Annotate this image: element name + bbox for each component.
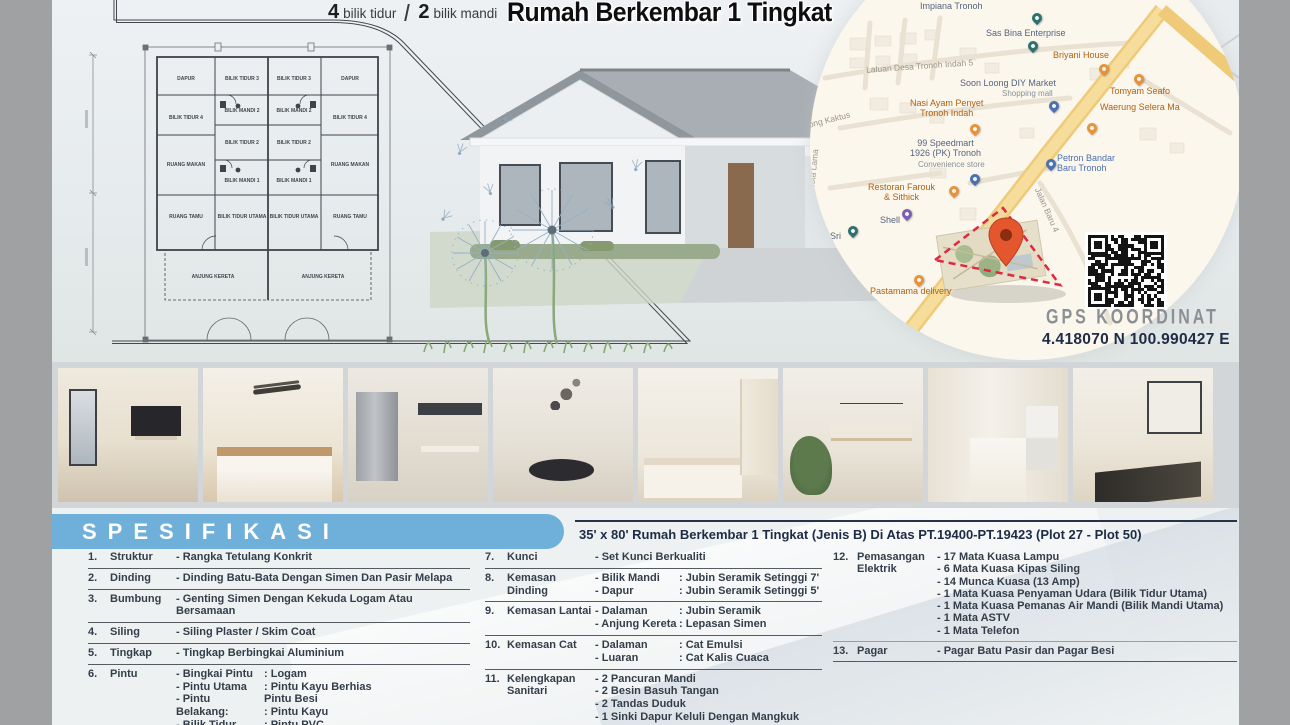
spec-subtitle: 35' x 80' Rumah Berkembar 1 Tingkat (Jen… xyxy=(579,527,1142,542)
gallery-photo-kitchen-fridge xyxy=(348,368,488,502)
bedroom-count: 4 xyxy=(328,1,339,23)
spec-label: Dinding xyxy=(110,572,176,585)
spec-item-kelengkapan-sanitari: 11. Kelengkapan Sanitari - 2 Pancuran Ma… xyxy=(485,670,822,725)
spec-text: - Pagar Batu Pasir dan Pagar Besi xyxy=(937,645,1237,657)
spec-item-tingkap: 5. Tingkap - Tingkap Berbingkai Aluminiu… xyxy=(88,644,470,665)
header-stats: 4bilik tidur2bilik mandi xyxy=(328,1,497,24)
spec-text: - Dinding Batu-Bata Dengan Simen Dan Pas… xyxy=(176,572,470,585)
spec-num: 7. xyxy=(485,551,507,564)
spec-item-kemasan-cat: 10. Kemasan Cat - Dalaman - Luaran : Cat… xyxy=(485,636,822,670)
bathroom-label: bilik mandi xyxy=(434,6,498,21)
room-label-utama: BILIK TIDUR UTAMA xyxy=(218,214,267,220)
room-label-anjung: ANJUNG KERETA xyxy=(192,274,235,280)
room-label-tidur2: BILIK TIDUR 2 xyxy=(225,140,259,146)
room-label-tidur4-2: BILIK TIDUR 4 xyxy=(333,115,367,121)
spec-column-2: 7. Kunci - Set Kunci Berkualiti 8. Kemas… xyxy=(485,548,822,725)
room-label-tamu-2: RUANG TAMU xyxy=(333,214,367,220)
qr-finder-icon xyxy=(1144,235,1164,255)
spec-item-kunci: 7. Kunci - Set Kunci Berkualiti xyxy=(485,548,822,569)
spec-banner: SPESIFIKASI xyxy=(52,514,564,549)
spec-text: - Siling Plaster / Skim Coat xyxy=(176,626,470,639)
spec-label: Tingkap xyxy=(110,647,176,660)
bedroom-label: bilik tidur xyxy=(343,6,396,21)
spec-text: - Rangka Tetulang Konkrit xyxy=(176,551,470,564)
map-label-speedmart-sub: Convenience store xyxy=(918,160,985,170)
room-label-tidur3: BILIK TIDUR 3 xyxy=(225,76,259,82)
spec-column-3: 12. Pemasangan Elektrik - 17 Mata Kuasa … xyxy=(833,548,1237,662)
spec-keys: - Dalaman - Luaran xyxy=(595,639,679,665)
room-label-makan-2: RUANG MAKAN xyxy=(331,162,370,168)
map-label-soon-loong: Soon Loong DIY Market xyxy=(960,78,1056,88)
spec-text: - 17 Mata Kuasa Lampu - 6 Mata Kuasa Kip… xyxy=(937,551,1237,637)
map-label-shell: Shell xyxy=(880,215,900,225)
spec-keys: - Bingkai Pintu - Pintu Utama - Pintu Be… xyxy=(176,668,264,725)
room-label-tidur4: BILIK TIDUR 4 xyxy=(169,115,203,121)
gallery-photo-dining-area xyxy=(493,368,633,502)
spec-num: 10. xyxy=(485,639,507,665)
gallery-photo-foyer-cabinet xyxy=(783,368,923,502)
spec-num: 5. xyxy=(88,647,110,660)
dimension-line xyxy=(85,52,97,335)
room-label-anjung-2: ANJUNG KERETA xyxy=(302,274,345,280)
map-label-speedmart: 99 Speedmart 1926 (PK) Tronoh xyxy=(910,138,981,158)
room-label-dapur-2: DAPUR xyxy=(341,76,359,82)
spec-label: Kelengkapan Sanitari xyxy=(507,673,595,725)
spec-item-struktur: 1. Struktur - Rangka Tetulang Konkrit xyxy=(88,548,470,569)
spec-vals: : Logam : Pintu Kayu Berhias Pintu Besi … xyxy=(264,668,470,725)
spec-num: 11. xyxy=(485,673,507,725)
spec-label: Kemasan Lantai xyxy=(507,605,595,631)
spec-vals: : Jubin Seramik Setinggi 7' : Jubin Sera… xyxy=(679,572,822,598)
spec-label: Kemasan Cat xyxy=(507,639,595,665)
gps-coordinates: 4.418070 N 100.990427 E xyxy=(1042,331,1230,349)
room-label-tamu: RUANG TAMU xyxy=(169,214,203,220)
room-label-mandi1: BILIK MANDI 1 xyxy=(225,178,260,184)
qr-finder-icon xyxy=(1088,287,1108,307)
spec-column-1: 1. Struktur - Rangka Tetulang Konkrit 2.… xyxy=(88,548,470,725)
room-label-mandi1-2: BILIK MANDI 1 xyxy=(277,178,312,184)
spec-item-bumbung: 3. Bumbung - Genting Simen Dengan Kekuda… xyxy=(88,590,470,624)
photo-gallery xyxy=(52,362,1239,508)
map-label-soon-loong-sub: Shopping mall xyxy=(1002,89,1053,99)
map-label-tomyam: Tomyam Seafo xyxy=(1110,86,1170,96)
map-label-warung: Waerung Selera Ma xyxy=(1100,102,1180,112)
spec-item-dinding: 2. Dinding - Dinding Batu-Bata Dengan Si… xyxy=(88,569,470,590)
map-label-impiana: Impiana Tronoh xyxy=(920,1,983,11)
gps-title: GPS KOORDINAT xyxy=(1046,306,1219,330)
spec-num: 8. xyxy=(485,572,507,598)
brochure-screenshot: DAPUR BILIK TIDUR 3 BILIK MANDI 2 BILIK … xyxy=(0,0,1290,725)
spec-keys: - Dalaman - Anjung Kereta xyxy=(595,605,679,631)
page-title: Rumah Berkembar 1 Tingkat xyxy=(507,0,832,28)
map-label-sas-bina: Sas Bina Enterprise xyxy=(986,28,1066,38)
qr-code xyxy=(1085,232,1167,310)
gallery-photo-bedroom-ceiling-fan xyxy=(203,368,343,502)
map-label-petron: Petron Bandar Baru Tronoh xyxy=(1057,153,1115,173)
spec-num: 6. xyxy=(88,668,110,725)
room-label-dapur: DAPUR xyxy=(177,76,195,82)
floorplan-walls xyxy=(157,57,378,300)
grass-art xyxy=(424,340,672,353)
gallery-photo-bedroom-cream xyxy=(638,368,778,502)
specification-section: SPESIFIKASI 35' x 80' Rumah Berkembar 1 … xyxy=(52,508,1239,725)
gallery-photo-bedroom-study xyxy=(1073,368,1213,502)
map-label-nasi-ayam: Nasi Ayam Penyet Tronoh Indah xyxy=(910,98,983,118)
map-label-sri: Sri xyxy=(830,231,841,241)
spec-num: 12. xyxy=(833,551,857,637)
qr-finder-icon xyxy=(1088,235,1108,255)
stat-divider xyxy=(405,4,411,21)
spec-text: - Genting Simen Dengan Kekuda Logam Atau… xyxy=(176,593,470,619)
spec-item-pemasangan-elektrik: 12. Pemasangan Elektrik - 17 Mata Kuasa … xyxy=(833,548,1237,642)
spec-label: Pagar xyxy=(857,645,937,657)
room-label-mandi2-2: BILIK MANDI 2 xyxy=(277,108,312,114)
spec-label: Kemasan Dinding xyxy=(507,572,595,598)
spec-item-pagar: 13. Pagar - Pagar Batu Pasir dan Pagar B… xyxy=(833,642,1237,662)
spec-num: 4. xyxy=(88,626,110,639)
spec-label: Bumbung xyxy=(110,593,176,619)
photo-row xyxy=(58,368,1213,502)
spec-item-pintu: 6. Pintu - Bingkai Pintu - Pintu Utama -… xyxy=(88,665,470,725)
spec-text: - Set Kunci Berkualiti xyxy=(595,551,822,564)
spec-label: Pintu xyxy=(110,668,176,725)
spec-text: - 2 Pancuran Mandi - 2 Besin Basuh Tanga… xyxy=(595,673,822,725)
spec-label: Struktur xyxy=(110,551,176,564)
spec-vals: : Jubin Seramik : Lepasan Simen xyxy=(679,605,822,631)
spec-num: 1. xyxy=(88,551,110,564)
spec-item-siling: 4. Siling - Siling Plaster / Skim Coat xyxy=(88,623,470,644)
spec-label: Kunci xyxy=(507,551,595,564)
brochure-sheet: DAPUR BILIK TIDUR 3 BILIK MANDI 2 BILIK … xyxy=(52,0,1239,725)
bathroom-count: 2 xyxy=(418,1,429,23)
room-label-utama-2: BILIK TIDUR UTAMA xyxy=(270,214,319,220)
spec-num: 2. xyxy=(88,572,110,585)
spec-item-kemasan-lantai: 9. Kemasan Lantai - Dalaman - Anjung Ker… xyxy=(485,602,822,636)
room-label-tidur3-2: BILIK TIDUR 3 xyxy=(277,76,311,82)
spec-text: - Tingkap Berbingkai Aluminium xyxy=(176,647,470,660)
spec-label: Pemasangan Elektrik xyxy=(857,551,937,637)
room-label-mandi2: BILIK MANDI 2 xyxy=(225,108,260,114)
spec-title: SPESIFIKASI xyxy=(52,514,564,549)
spec-label: Siling xyxy=(110,626,176,639)
spec-num: 13. xyxy=(833,645,857,657)
gallery-photo-living-room xyxy=(58,368,198,502)
map-label-briyani: Briyani House xyxy=(1053,50,1109,60)
spec-item-kemasan-dinding: 8. Kemasan Dinding - Bilik Mandi - Dapur… xyxy=(485,569,822,603)
spec-num: 9. xyxy=(485,605,507,631)
room-label-makan: RUANG MAKAN xyxy=(167,162,206,168)
map-label-pastamama: Pastamama delivery xyxy=(870,286,952,296)
spec-vals: : Cat Emulsi : Cat Kalis Cuaca xyxy=(679,639,822,665)
room-label-tidur2-2: BILIK TIDUR 2 xyxy=(277,140,311,146)
subtitle-overline xyxy=(575,520,1237,522)
map-label-farouk: Restoran Farouk & Sithick xyxy=(868,182,935,202)
gallery-photo-laundry-corridor xyxy=(928,368,1068,502)
spec-num: 3. xyxy=(88,593,110,619)
spec-keys: - Bilik Mandi - Dapur xyxy=(595,572,679,598)
